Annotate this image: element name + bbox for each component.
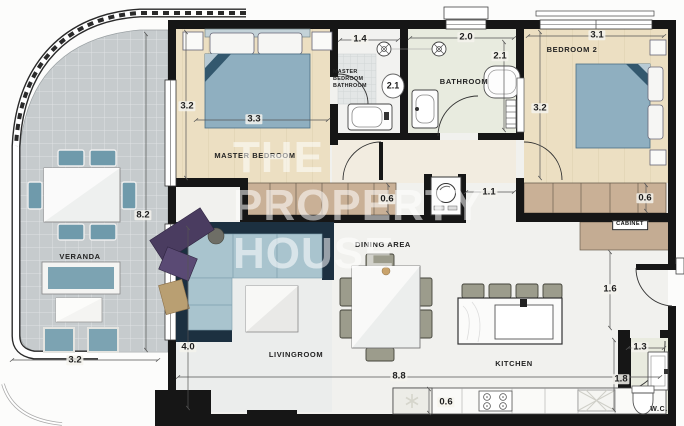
chair [58, 224, 84, 240]
bathroom-window [444, 7, 488, 29]
nightstand [312, 32, 332, 50]
kitchen-island [458, 284, 562, 344]
master-bedroom-height-dim: 3.2 [178, 101, 195, 111]
bathroom-depth-dim: 2.1 [491, 51, 508, 61]
radiator-icon [506, 100, 516, 128]
bedroom2-label: BEDROOM 2 [547, 46, 598, 54]
dining-area-label: DINING AREA [355, 241, 411, 249]
stool [462, 284, 484, 298]
bedroom2-window [536, 11, 654, 29]
chair [366, 348, 394, 361]
master-bedroom-label: MASTER BEDROOM [214, 152, 295, 160]
wc-width-dim: 1.3 [631, 342, 648, 352]
nightstand [650, 40, 666, 55]
pillow [210, 33, 254, 54]
cabinet-label: CABINET [612, 220, 648, 230]
bedroom2-closet-depth-dim: 0.6 [636, 193, 653, 203]
chair [28, 182, 42, 209]
floor-plan-drawing [0, 0, 684, 426]
floor-plan: MASTER BEDROOM 3.2 3.3 MASTER BEDROOM BA… [0, 0, 684, 426]
shower-head-icon [432, 42, 446, 56]
total-width-dim: 8.8 [390, 371, 407, 381]
stool [516, 284, 538, 298]
coffee-table [246, 286, 298, 332]
master-bathroom-label: MASTER BEDROOM BATHROOM [333, 69, 367, 90]
counter-depth-dim: 0.6 [437, 397, 454, 407]
bathroom-width-dim: 2.0 [457, 32, 474, 42]
stool [489, 284, 511, 298]
bedroom2-width-dim: 3.1 [588, 30, 605, 40]
kitchen-counter [393, 388, 666, 414]
wc-sink-icon [648, 352, 668, 390]
chair [122, 182, 136, 209]
shower-head-icon [377, 42, 391, 56]
master-bathroom-width-dim: 1.4 [351, 34, 368, 44]
veranda-width-dim: 3.2 [66, 355, 83, 365]
pillow [258, 33, 302, 54]
bedroom2-height-dim: 3.2 [531, 103, 548, 113]
stool [543, 284, 562, 298]
master-bedroom-window [165, 80, 176, 186]
chair [90, 224, 116, 240]
hall-width-dim: 1.1 [480, 187, 497, 197]
nightstand [650, 150, 666, 165]
chair [90, 150, 116, 166]
master-closet-depth-dim: 0.6 [378, 194, 395, 204]
entrance-door-leaf [636, 264, 676, 270]
entrance-step [676, 258, 684, 274]
master-bedroom-door-leaf [379, 142, 383, 180]
vanity-sink-icon [348, 104, 392, 130]
wc-height-dim: 1.8 [612, 374, 629, 384]
livingroom-height-dim: 4.0 [179, 342, 196, 352]
master-closet [244, 183, 396, 215]
stool [88, 328, 118, 352]
livingroom-label: LIVINGROOM [269, 351, 323, 359]
pillow [648, 67, 663, 101]
faucet-icon [520, 299, 527, 307]
stool [44, 328, 74, 352]
veranda-length-dim: 8.2 [134, 210, 151, 220]
island-sink [495, 305, 553, 339]
vanity-sink-icon [412, 90, 438, 128]
kitchen-label: KITCHEN [495, 360, 533, 368]
master-bathroom-depth-dim: 2.1 [387, 82, 400, 91]
hall-cabinet-dim: 1.6 [601, 284, 618, 294]
pillow [648, 105, 663, 139]
counter-sink-icon [578, 390, 615, 411]
veranda-label: VERANDA [59, 253, 100, 261]
washing-machine-icon [431, 177, 461, 215]
wall-mirror [517, 78, 524, 132]
chair [58, 150, 84, 166]
hob-icon [479, 391, 512, 411]
tv-unit [247, 410, 297, 415]
bathtub-icon [484, 66, 520, 98]
wc-label: W.C. [650, 406, 668, 414]
bench-cushion [48, 267, 114, 289]
bathroom-label: BATHROOM [440, 78, 488, 86]
master-bedroom-width-dim: 3.3 [245, 114, 262, 124]
dining-set [340, 254, 432, 361]
